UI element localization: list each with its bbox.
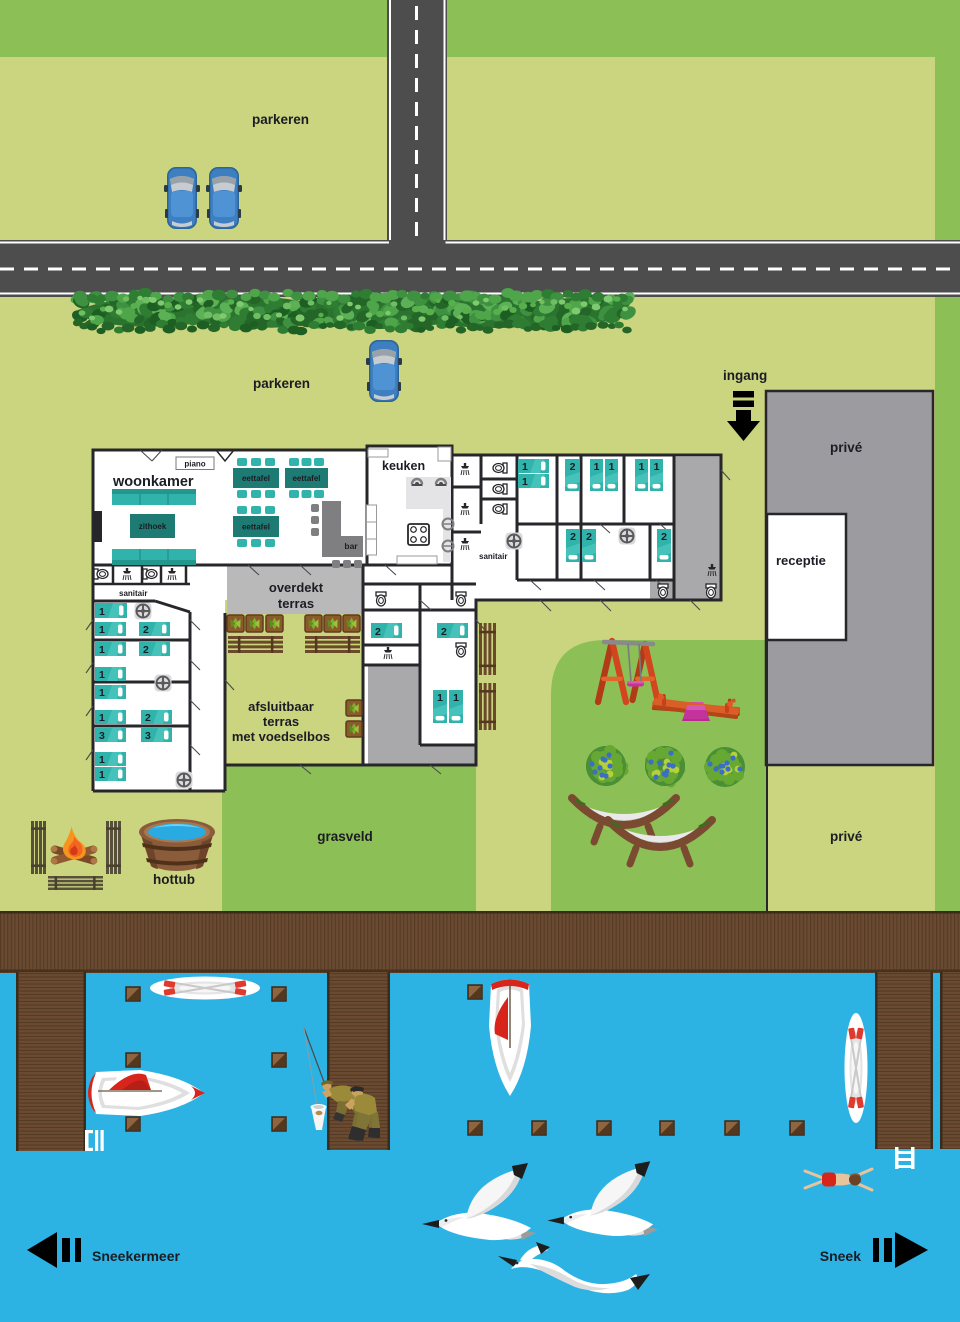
svg-text:sanitair: sanitair [119,589,147,598]
svg-text:terras: terras [263,714,299,729]
svg-text:1: 1 [453,692,459,704]
svg-text:hottub: hottub [153,872,195,887]
svg-text:eettafel: eettafel [242,523,270,532]
svg-text:3: 3 [145,730,151,742]
svg-text:1: 1 [99,712,105,724]
svg-text:2: 2 [375,626,381,638]
svg-text:afsluitbaar: afsluitbaar [248,699,314,714]
svg-text:1: 1 [654,461,660,473]
svg-text:2: 2 [143,624,149,636]
svg-text:grasveld: grasveld [317,829,373,844]
svg-text:1: 1 [99,769,105,781]
svg-text:1: 1 [99,754,105,766]
svg-text:1: 1 [99,687,105,699]
svg-text:1: 1 [99,669,105,681]
svg-text:2: 2 [570,461,576,473]
svg-text:1: 1 [99,644,105,656]
svg-text:privé: privé [830,440,863,455]
svg-text:Sneek: Sneek [820,1248,861,1264]
svg-text:1: 1 [609,461,615,473]
svg-text:parkeren: parkeren [253,376,310,391]
svg-text:Sneekermeer: Sneekermeer [92,1248,181,1264]
svg-text:woonkamer: woonkamer [112,474,194,490]
svg-text:2: 2 [661,531,667,543]
svg-text:parkeren: parkeren [252,112,309,127]
svg-text:piano: piano [184,460,205,469]
svg-text:receptie: receptie [776,553,826,568]
svg-text:2: 2 [570,531,576,543]
svg-text:met voedselbos: met voedselbos [232,729,330,744]
svg-text:1: 1 [522,476,528,488]
svg-text:1: 1 [594,461,600,473]
svg-text:sanitair: sanitair [479,552,507,561]
svg-text:eettafel: eettafel [292,474,320,483]
svg-text:1: 1 [99,624,105,636]
svg-text:2: 2 [143,644,149,656]
svg-text:bar: bar [344,541,358,551]
svg-text:terras: terras [278,596,314,611]
svg-text:eettafel: eettafel [242,474,270,483]
svg-text:2: 2 [441,626,447,638]
svg-text:privé: privé [830,829,863,844]
svg-text:ingang: ingang [723,368,767,383]
svg-text:1: 1 [437,692,443,704]
svg-text:3: 3 [99,730,105,742]
svg-text:overdekt: overdekt [269,580,324,595]
svg-text:2: 2 [145,712,151,724]
svg-text:keuken: keuken [382,459,425,473]
svg-text:1: 1 [99,606,105,618]
svg-text:2: 2 [586,531,592,543]
svg-text:1: 1 [639,461,645,473]
svg-text:1: 1 [522,461,528,473]
svg-text:zithoek: zithoek [139,522,167,531]
